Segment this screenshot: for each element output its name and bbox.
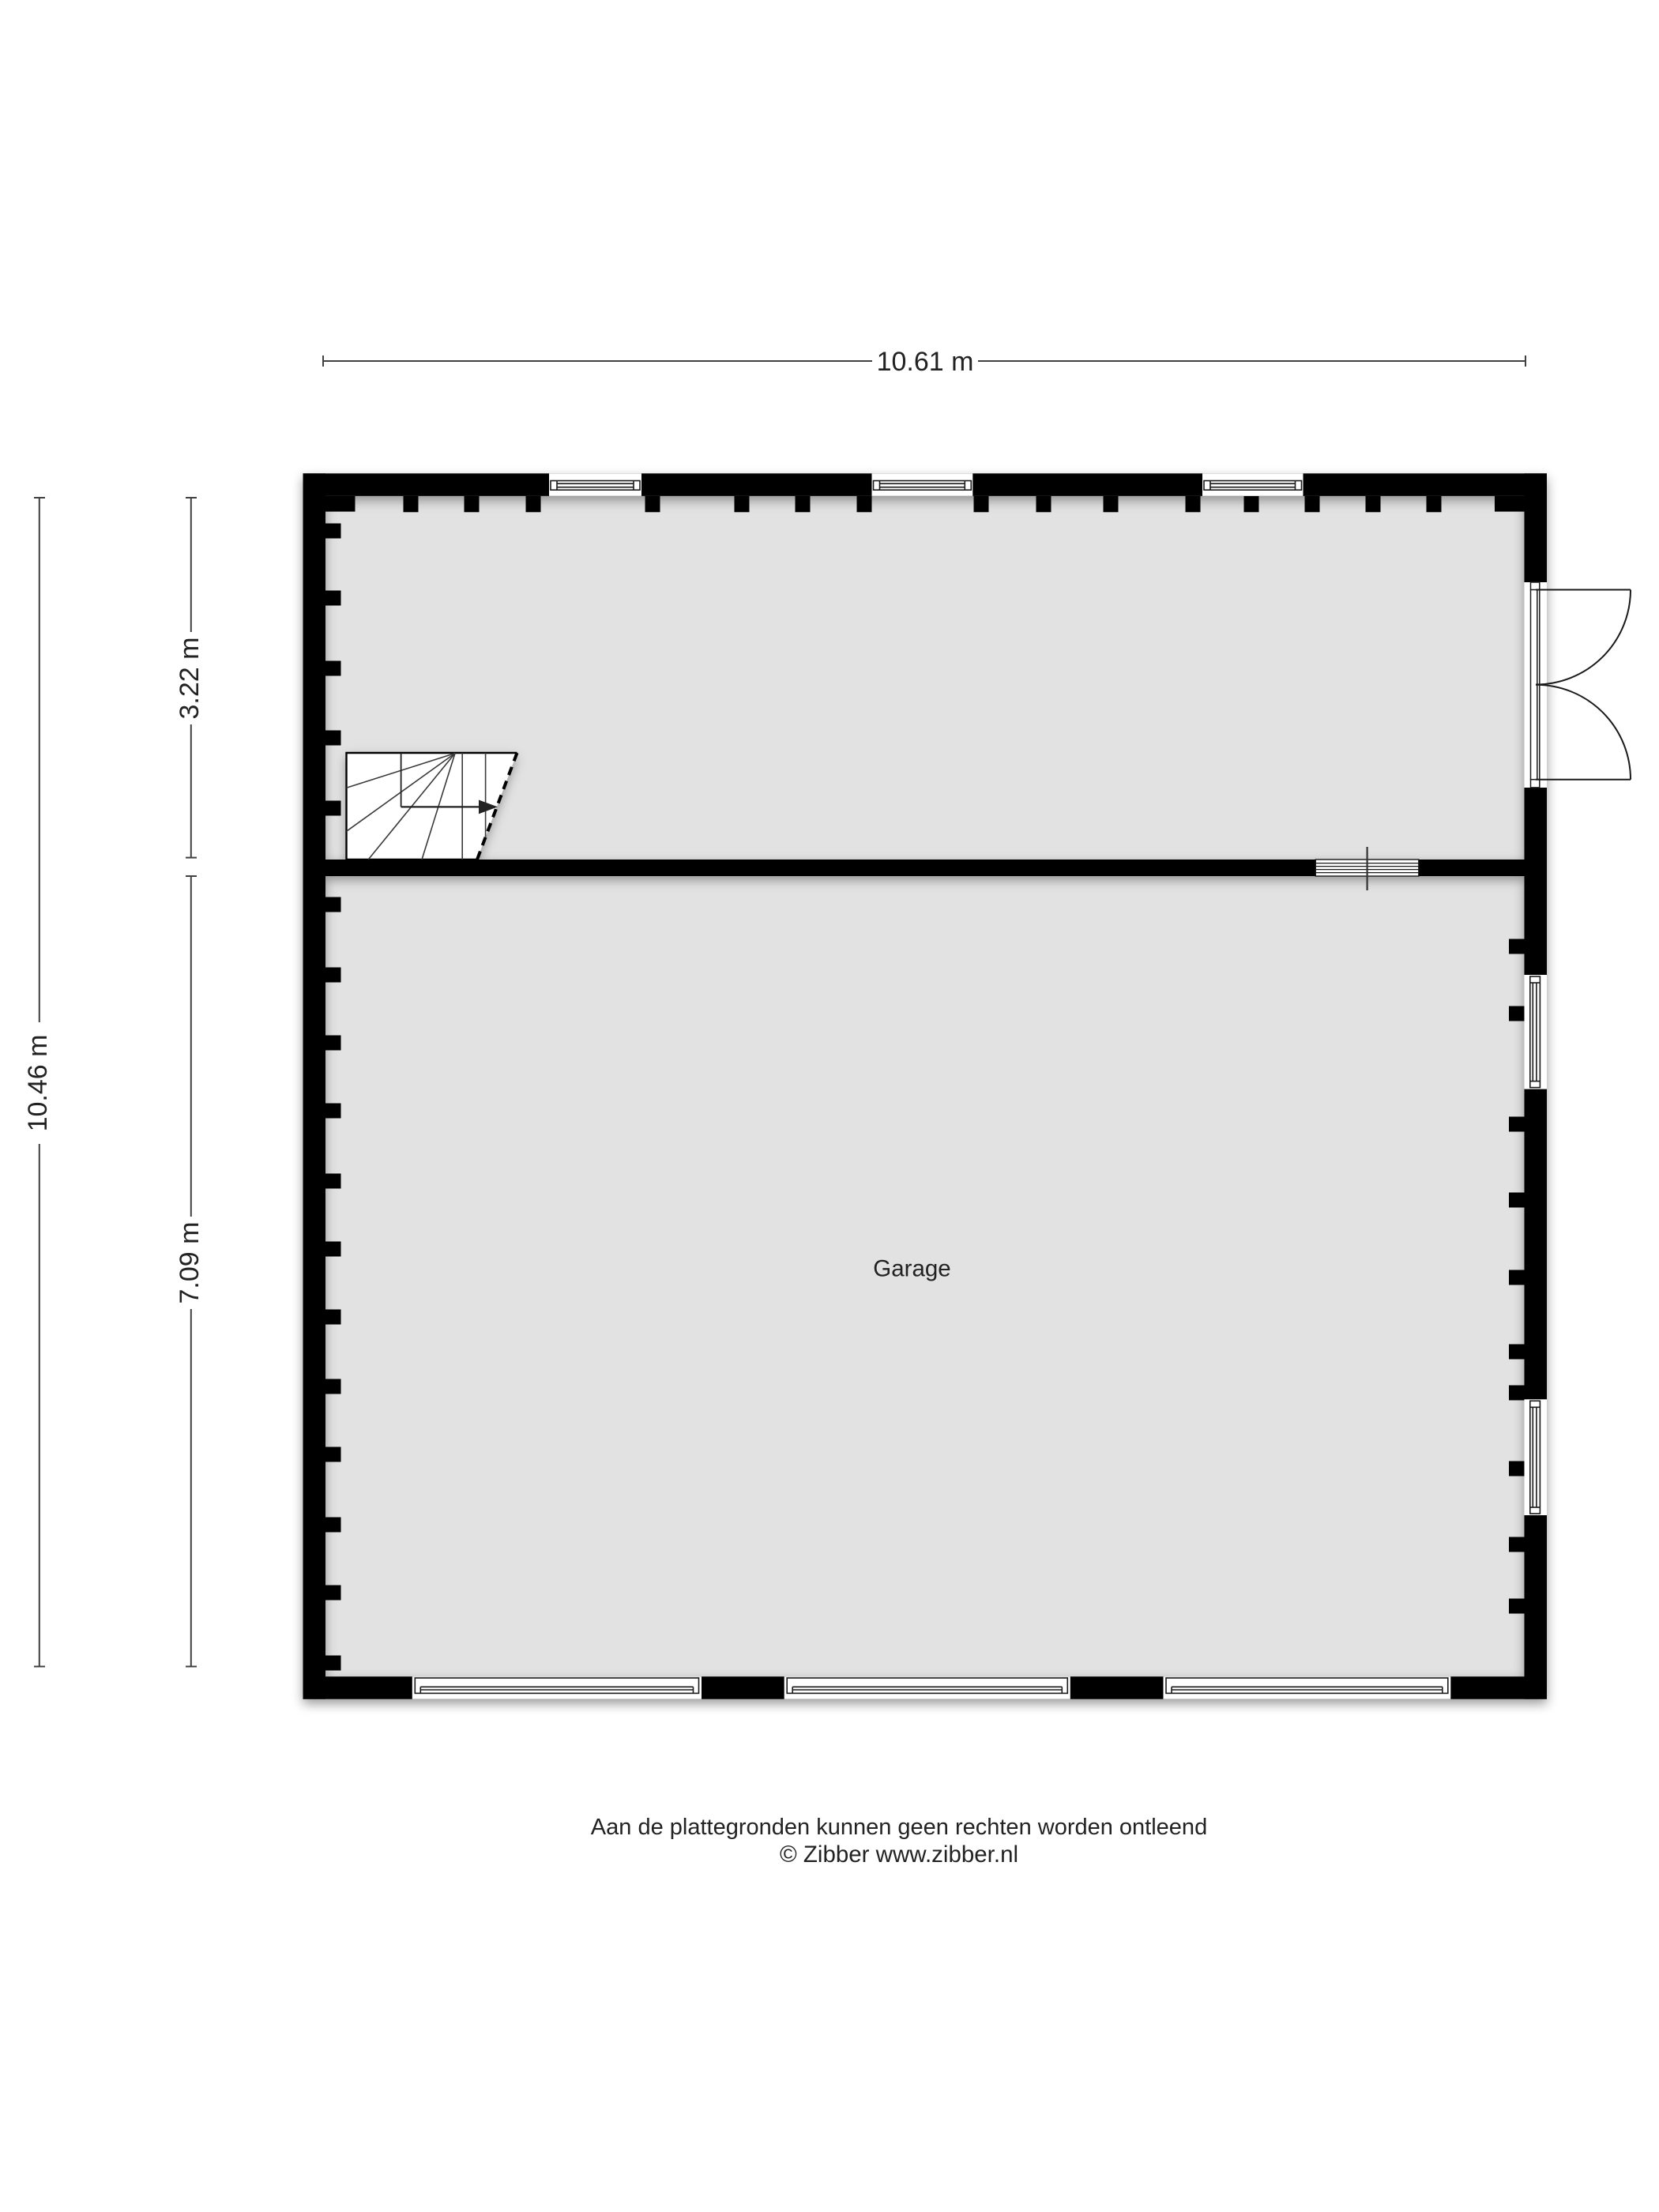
svg-text:Garage: Garage	[873, 1256, 950, 1282]
svg-text:© Zibber www.zibber.nl: © Zibber www.zibber.nl	[780, 1841, 1018, 1868]
svg-text:10.61 m: 10.61 m	[877, 347, 974, 377]
svg-text:3.22 m: 3.22 m	[175, 638, 205, 720]
svg-text:10.46 m: 10.46 m	[23, 1035, 53, 1132]
svg-text:Aan de plattegronden kunnen ge: Aan de plattegronden kunnen geen rechten…	[591, 1815, 1207, 1840]
svg-text:7.09 m: 7.09 m	[175, 1222, 205, 1304]
